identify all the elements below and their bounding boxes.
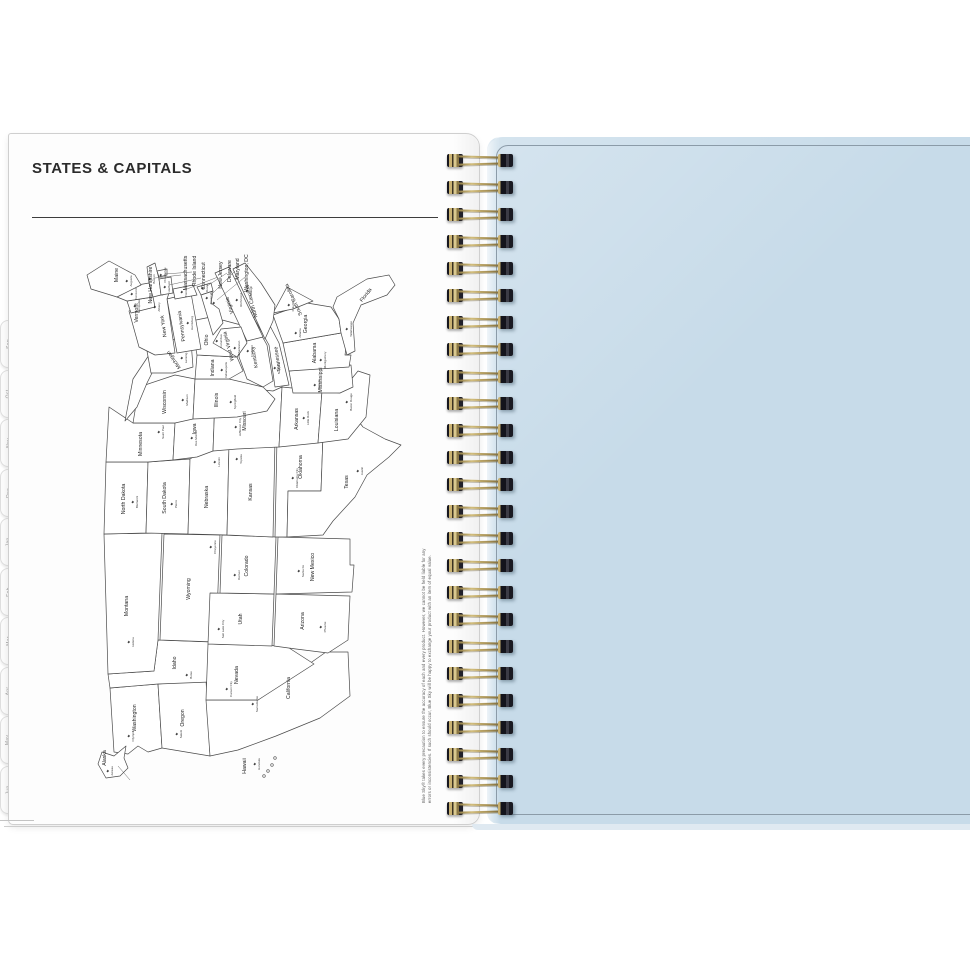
blue-cover-page: [487, 137, 970, 824]
wire-clamp-right: [498, 262, 513, 275]
wire-loop: [447, 774, 513, 789]
wire-loop: [447, 396, 513, 411]
wire-loop: [447, 261, 513, 276]
wire-clamp-right: [498, 748, 513, 761]
capital-label: Saint Paul: [161, 425, 165, 439]
wire-loop: [447, 450, 513, 465]
wire-loop: [447, 234, 513, 249]
state-label: Washington: [132, 704, 138, 731]
capital-label: Juneau: [110, 766, 114, 776]
capital-label: Bismarck: [135, 495, 139, 508]
wire-loop: [447, 315, 513, 330]
state-label: Rhode Island: [192, 256, 198, 287]
capital-label: Helena: [131, 637, 135, 647]
wire-clamp-right: [498, 370, 513, 383]
capital-label: Dover: [205, 284, 209, 292]
state-label: Utah: [238, 613, 244, 624]
capital-label: Harrisburg: [190, 316, 194, 330]
state-label: New Mexico: [310, 553, 316, 581]
capital-label: Augusta: [129, 275, 133, 286]
capital-label: Cheyenne: [213, 540, 217, 554]
wire-loop: [447, 180, 513, 195]
state-label: Missouri: [242, 411, 248, 430]
capital-label: Lansing: [184, 352, 188, 363]
capital-label: Frankfort: [250, 345, 254, 357]
state-label: New Hampshire: [148, 266, 154, 303]
wire-loop: [447, 531, 513, 546]
capital-label: Des Moines: [194, 430, 198, 446]
capital-label: Montgomery: [323, 351, 327, 368]
state-label: Illinois: [214, 392, 220, 407]
wire-loop: [447, 585, 513, 600]
wire-clamp-right: [498, 586, 513, 599]
wire-clamp-right: [498, 451, 513, 464]
state-shape: [195, 355, 243, 379]
state-label: Hawaii: [242, 758, 248, 774]
wire-clamp-right: [498, 613, 513, 626]
wire-clamp-right: [498, 505, 513, 518]
capital-label: Charleston: [237, 340, 241, 355]
state-label: Arizona: [300, 612, 306, 630]
page-stack-edge: [0, 820, 34, 821]
wire-loop: [447, 423, 513, 438]
capital-label: Trenton: [184, 287, 188, 298]
wire-clamp-right: [498, 289, 513, 302]
wire-loop: [447, 558, 513, 573]
wire-clamp-right: [498, 775, 513, 788]
capital-label: Richmond: [239, 293, 243, 307]
wire-loop: [447, 477, 513, 492]
capital-label: Phoenix: [323, 621, 327, 632]
wire-clamp-right: [498, 532, 513, 545]
capital-label: Boise: [189, 671, 193, 679]
state-label: Wisconsin: [162, 390, 168, 414]
publisher-disclaimer: Blue Sky® takes every precaution to ensu…: [421, 543, 432, 803]
capital-label: Topeka: [239, 454, 243, 464]
state-label: Washington, DC: [244, 254, 250, 292]
capital-label: Nashville: [277, 362, 281, 375]
capital-label: Baton Rouge: [349, 393, 353, 411]
wire-loop: [447, 207, 513, 222]
page-title: STATES & CAPITALS: [32, 160, 192, 177]
wire-loop: [447, 666, 513, 681]
capital-star-icon: ★: [211, 301, 216, 305]
state-label: Kansas: [248, 483, 254, 501]
wire-clamp-right: [498, 721, 513, 734]
capital-label: Sacramento: [255, 696, 259, 713]
wire-loop: [447, 288, 513, 303]
title-rule: [32, 217, 438, 218]
capital-label: Little Rock: [306, 411, 310, 426]
capital-label: Montpelier: [137, 299, 141, 313]
wire-loop: [447, 612, 513, 627]
wire-loop: [447, 801, 513, 816]
hawaii-island: [271, 764, 274, 767]
page-stack-edge: [4, 826, 478, 827]
state-label: Minnesota: [138, 432, 144, 456]
capital-label: Boston: [152, 274, 156, 284]
wire-loop: [447, 342, 513, 357]
state-label: Delaware: [227, 260, 233, 282]
capital-label: Springfield: [233, 395, 237, 410]
wire-clamp-right: [498, 235, 513, 248]
capital-label: Atlanta: [298, 328, 302, 338]
capital-label: Santa Fe: [301, 565, 305, 578]
disclaimer-line-2: errors or inconsistencies. If such shoul…: [427, 543, 433, 803]
state-label: Maine: [114, 268, 120, 282]
state-shape: [274, 594, 350, 653]
wire-clamp-right: [498, 424, 513, 437]
state-label: Texas: [344, 475, 350, 489]
wire-clamp-right: [498, 154, 513, 167]
back-cover-under-edge: [472, 824, 970, 830]
capital-label: Hartford: [167, 281, 171, 292]
capital-label: Denver: [237, 570, 241, 580]
capital-label: Carson City: [229, 681, 233, 697]
state-label: Oregon: [180, 709, 186, 726]
capital-label: Concord: [134, 288, 138, 300]
state-label: California: [286, 677, 292, 699]
state-label: Arkansas: [294, 408, 300, 430]
capital-label: Jackson: [317, 379, 321, 390]
wire-clamp-right: [498, 640, 513, 653]
wire-loop: [447, 693, 513, 708]
capital-label: Madison: [185, 394, 189, 406]
state-label: Nebraska: [204, 486, 210, 508]
wire-clamp-right: [498, 802, 513, 815]
capital-label: Albany: [157, 302, 161, 312]
planner-product-photo: SepOctNovDecJanFebMarAprMayJun STATES & …: [0, 0, 970, 971]
wire-clamp-right: [498, 667, 513, 680]
state-label: South Dakota: [162, 482, 168, 514]
cover-inset-border: [496, 145, 970, 815]
hawaii-island: [274, 757, 277, 760]
capital-label: Austin: [360, 467, 364, 476]
state-label: Nevada: [234, 666, 240, 684]
capital-label: Pierre: [174, 500, 178, 508]
state-label: Indiana: [210, 359, 216, 376]
wire-clamp-right: [498, 559, 513, 572]
capital-label: Olympia: [131, 730, 135, 741]
state-label: Maryland: [235, 258, 241, 279]
hawaii-island: [267, 770, 270, 773]
state-label: North Dakota: [121, 484, 127, 515]
state-label: Wyoming: [186, 578, 192, 600]
disclaimer-line-1: Blue Sky® takes every precaution to ensu…: [421, 543, 427, 803]
hawaii-island: [263, 775, 266, 778]
capital-label: Columbia: [291, 298, 295, 311]
wire-loop: [447, 720, 513, 735]
wire-clamp-right: [498, 343, 513, 356]
capital-label: Salt Lake City: [221, 619, 225, 638]
state-label: Ohio: [204, 334, 210, 345]
state-label: Colorado: [244, 555, 250, 576]
state-label: Alaska: [102, 750, 108, 766]
state-label: Louisiana: [334, 409, 340, 431]
capital-label: Tallahassee: [349, 321, 353, 337]
wire-loop: [447, 369, 513, 384]
capital-label: Providence: [163, 267, 167, 282]
wire-clamp-right: [498, 181, 513, 194]
state-label: Idaho: [172, 656, 178, 669]
wire-loop: [447, 639, 513, 654]
wire-loop: [447, 504, 513, 519]
wire-clamp-right: [498, 316, 513, 329]
capital-label: Oklahoma City: [295, 468, 299, 488]
capital-label: Honolulu: [257, 758, 261, 770]
wire-clamp-right: [498, 694, 513, 707]
wire-clamp-right: [498, 208, 513, 221]
state-shape: [104, 533, 162, 674]
wire-clamp-right: [498, 397, 513, 410]
state-shape: [146, 459, 190, 534]
capital-label: Lincoln: [217, 457, 221, 467]
wire-loop: [447, 747, 513, 762]
capital-label: Salem: [179, 729, 183, 738]
wire-loop: [447, 153, 513, 168]
us-states-capitals-map: Washington★OlympiaOregon★SalemCalifornia…: [76, 246, 408, 792]
state-label: Montana: [124, 596, 130, 616]
capital-label: Indianapolis: [224, 361, 228, 378]
wire-clamp-right: [498, 478, 513, 491]
state-label: New Jersey: [218, 261, 224, 289]
capital-label: Jefferson City: [238, 417, 242, 436]
state-label: Georgia: [303, 315, 309, 334]
